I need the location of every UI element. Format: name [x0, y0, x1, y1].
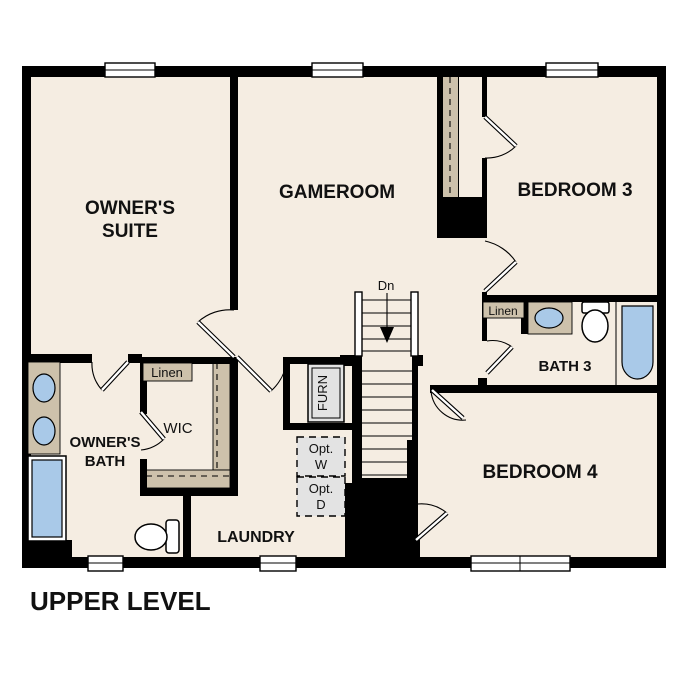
- bedroom3-label: BEDROOM 3: [517, 180, 632, 201]
- wall-bedroom3-west-upper: [482, 70, 487, 117]
- optional-washer-label-1: Opt.: [309, 441, 334, 456]
- wall-gameroom-east: [437, 70, 443, 197]
- owners-suite-label-1: OWNER'S: [85, 198, 175, 219]
- bath3-toilet-bowl: [582, 310, 608, 342]
- wall-stub-bedroom4-door: [413, 540, 420, 558]
- wic-shelf-bottom: [146, 470, 230, 488]
- wall-laundry-west: [183, 496, 191, 558]
- wall-stairs-west: [352, 355, 362, 483]
- wall-furnace-west: [283, 357, 290, 430]
- linen-hall-label: Linen: [151, 365, 183, 380]
- bedroom4-label: BEDROOM 4: [482, 462, 598, 483]
- optional-washer-label-2: W: [315, 457, 328, 472]
- wall-outer-right: [657, 66, 666, 568]
- owners-sink-1: [33, 374, 55, 402]
- wall-wic-east: [230, 357, 238, 496]
- owners-toilet-tank: [166, 520, 179, 553]
- gameroom-label: GAMEROOM: [279, 182, 395, 203]
- owners-tub: [32, 460, 62, 537]
- wall-bedroom4-north: [430, 385, 657, 393]
- optional-dryer-label-1: Opt.: [309, 481, 334, 496]
- owners-bath-label-2: BATH: [85, 453, 126, 470]
- stair-dn-label: Dn: [378, 278, 395, 293]
- wall-owners-suite-east: [230, 70, 238, 310]
- stair-rail-left: [355, 292, 362, 356]
- wall-block-chase: [437, 197, 487, 238]
- wic-label: WIC: [163, 420, 192, 437]
- floor-plan-page: Dn: [0, 0, 687, 687]
- wall-bath3-north: [487, 295, 657, 302]
- owners-suite-label-2: SUITE: [102, 221, 158, 242]
- owners-toilet-bowl: [135, 524, 167, 550]
- wall-furnace-south: [283, 423, 360, 430]
- bath3-label: BATH 3: [538, 358, 591, 375]
- stair-rail-right: [411, 292, 418, 356]
- chase-strip: [443, 77, 459, 197]
- wall-bedroom3-west-mid: [482, 158, 487, 198]
- furnace-label: FURN: [315, 375, 330, 411]
- bath3-tub: [622, 306, 653, 379]
- owners-bath-label-1: OWNER'S: [69, 434, 140, 451]
- floor-plan-drawing: Dn: [0, 0, 687, 687]
- laundry-label: LAUNDRY: [217, 529, 295, 546]
- wic-shelf-right: [213, 363, 230, 470]
- plan-title: UPPER LEVEL: [30, 586, 211, 616]
- wall-block-under-stairs: [345, 483, 418, 558]
- owners-sink-2: [33, 417, 55, 445]
- wall-block-southwest-corner: [22, 540, 72, 568]
- bath3-sink: [535, 308, 563, 328]
- linen-bath3-label: Linen: [488, 304, 517, 318]
- optional-dryer-label-2: D: [316, 497, 325, 512]
- wall-owners-bath-north-2: [128, 354, 142, 363]
- wall-wic-south: [140, 488, 237, 496]
